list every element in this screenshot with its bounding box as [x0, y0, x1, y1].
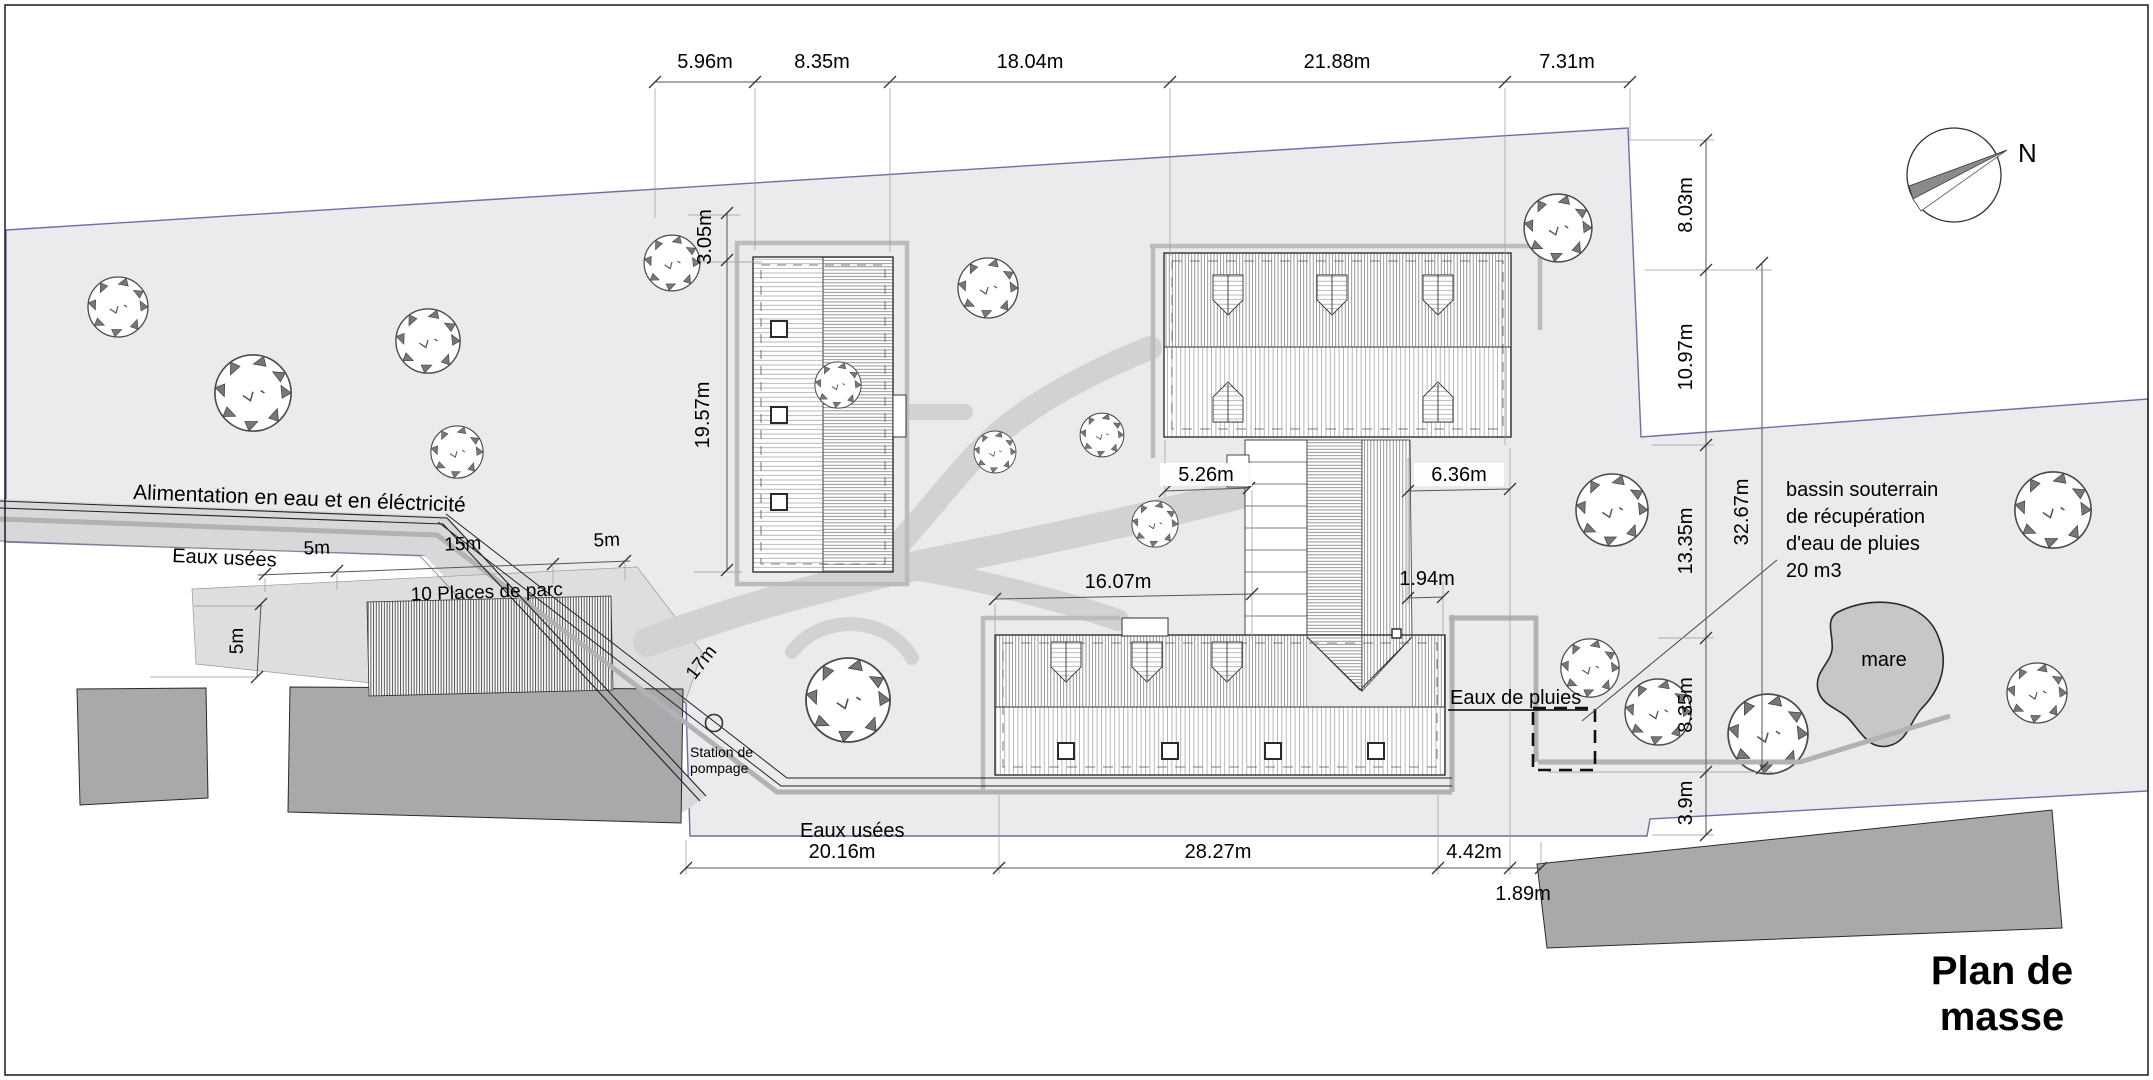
entrance-bottom-building: [1122, 618, 1168, 636]
dim-right-4: 8.35m: [1675, 677, 1697, 733]
basin-label-2: de récupération: [1786, 506, 1925, 528]
dim-road-1: 5m: [303, 538, 330, 560]
neighbor-building-left-small: [77, 688, 208, 805]
dim-left-2: 19.57m: [692, 382, 714, 449]
dim-parking-depth: 5m: [227, 628, 248, 654]
dim-mid-2: 6.36m: [1431, 464, 1487, 486]
pump-station-label-1: Station de: [690, 744, 753, 760]
dim-road-2: 15m: [444, 533, 482, 555]
waste-water-top-label: Eaux usées: [172, 545, 277, 572]
dim-mid-3: 16.07m: [1085, 571, 1152, 593]
basin-label-1: bassin souterrain: [1786, 479, 1938, 501]
dim-right-5: 3.9m: [1675, 781, 1697, 825]
entrance-left-building: [893, 395, 906, 437]
dim-right-2: 10.97m: [1675, 324, 1697, 391]
dim-bottom-1: 20.16m: [809, 841, 876, 863]
dim-right-3: 13.35m: [1675, 508, 1697, 575]
dim-mid-4: 1.94m: [1399, 568, 1455, 590]
chimney: [1392, 629, 1401, 638]
dim-bottom-offset: 1.89m: [1495, 883, 1551, 905]
basin-label-4: 20 m3: [1786, 560, 1842, 582]
dim-top-3: 18.04m: [997, 51, 1064, 73]
waste-water-bottom-label: Eaux usées: [800, 820, 905, 842]
exterior-stairs: [1245, 440, 1307, 638]
building-left: [753, 257, 906, 572]
dim-top-1: 5.96m: [677, 51, 733, 73]
plan-title-line1: Plan de: [1931, 949, 2073, 993]
site-plan-drawing: 5.96m 8.35m 18.04m 21.88m 7.31m 8.03m 10…: [0, 0, 2153, 1080]
rain-water-label: Eaux de pluies: [1450, 687, 1581, 709]
dim-right-overall: 32.67m: [1731, 479, 1753, 546]
parking-stalls-hatch: [367, 596, 613, 696]
dim-bottom-2: 28.27m: [1185, 841, 1252, 863]
dim-bottom-3: 4.42m: [1446, 841, 1502, 863]
north-label: N: [2018, 138, 2037, 168]
site-plan-sheet: 5.96m 8.35m 18.04m 21.88m 7.31m 8.03m 10…: [0, 0, 2153, 1080]
dim-left-1: 3.05m: [694, 209, 716, 265]
plan-title-line2: masse: [1940, 995, 2065, 1039]
pond-label: mare: [1861, 649, 1907, 671]
dim-mid-1: 5.26m: [1178, 464, 1234, 486]
basin-label-3: d'eau de pluies: [1786, 533, 1920, 555]
pump-station-label-2: pompage: [690, 760, 749, 776]
dim-top-4: 21.88m: [1304, 51, 1371, 73]
dim-top-5: 7.31m: [1539, 51, 1595, 73]
dim-road-3: 5m: [593, 530, 620, 552]
dim-right-1: 8.03m: [1675, 177, 1697, 233]
dim-top-2: 8.35m: [794, 51, 850, 73]
building-top-right: [1164, 253, 1511, 437]
